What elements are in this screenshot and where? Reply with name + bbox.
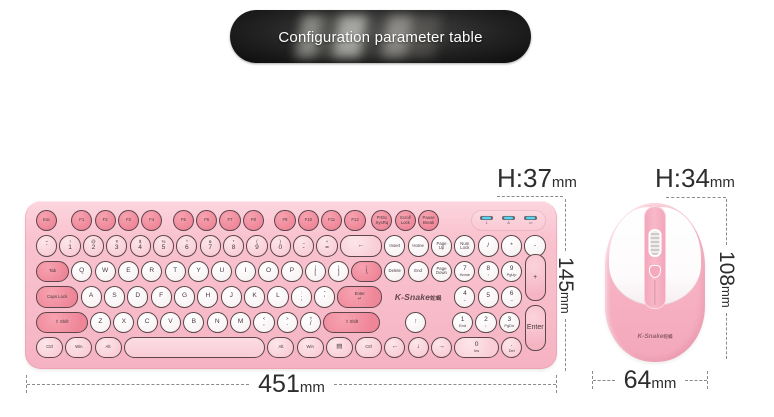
keyboard-row: CtrlWinAltAltWin▤Ctrl←↓→0Ins.Del: [35, 335, 547, 360]
key--: *: [501, 235, 522, 256]
key-e: E: [118, 261, 139, 282]
key-f5: F5: [173, 210, 194, 231]
key-esc: Esc: [36, 210, 57, 231]
keyboard-depth-label: 145mm: [553, 257, 577, 314]
key-x: X: [113, 312, 134, 333]
keyboard-row: EscF1F2F3F4F5F6F7F8F9F10F11F12PrtScSysRq…: [35, 208, 547, 233]
mouse-button-divider: [654, 280, 655, 305]
key-4: 4←: [454, 286, 475, 307]
key-f1: F1: [71, 210, 92, 231]
key-alt: Alt: [95, 337, 122, 358]
key--: ↑: [405, 312, 426, 333]
key--shift: ⇧ Shift: [323, 312, 379, 333]
key-home: Home: [408, 235, 429, 256]
key-d: D: [127, 286, 148, 307]
key-0: )0: [270, 235, 291, 256]
key-c: C: [137, 312, 158, 333]
battery-indicator-icon: ▭: [524, 216, 537, 226]
key-f12: F12: [344, 210, 365, 231]
key--: }]: [328, 261, 349, 282]
key-3: #3: [106, 235, 127, 256]
key-tab: Tab: [36, 261, 69, 282]
key-f8: F8: [243, 210, 264, 231]
keyboard-top-plane-line: [497, 196, 563, 197]
key-f: F: [151, 286, 172, 307]
key-5: 5: [478, 286, 499, 307]
key-f10: F10: [298, 210, 319, 231]
keyboard-depth-measure: 145mm: [552, 199, 578, 371]
keyboard-row: TabQWERTYUIOP{[}]|\DeleteEndPageDown7Hom…: [35, 259, 547, 284]
key-7: 7Home: [454, 261, 475, 282]
key--: .Del: [501, 337, 522, 358]
mouse-height-label: H:34mm: [655, 163, 735, 194]
key-v: V: [160, 312, 181, 333]
key-h: H: [197, 286, 218, 307]
keyboard-height-label: H:37mm: [497, 163, 577, 194]
key-n: N: [207, 312, 228, 333]
key--: {[: [305, 261, 326, 282]
keyboard-width-measure: 451mm: [26, 373, 557, 395]
keyboard-row: Caps LockASDFGHJKL:;"'Enter↵K-Snake蛇蝎4←5…: [35, 284, 547, 309]
key-f4: F4: [141, 210, 162, 231]
key-1: 1End: [452, 312, 473, 333]
key--: ←: [384, 337, 405, 358]
key-2: 2↓: [475, 312, 496, 333]
key--: →: [431, 337, 452, 358]
key-blank: [124, 337, 266, 358]
key-r: R: [141, 261, 162, 282]
key-caps-lock: Caps Lock: [36, 286, 78, 307]
key-9: (9: [246, 235, 267, 256]
key-f11: F11: [321, 210, 342, 231]
key--: "': [314, 286, 335, 307]
mouse-depth-measure: 108mm: [713, 199, 739, 359]
key-f9: F9: [274, 210, 295, 231]
key--: Enter↵: [337, 286, 382, 307]
key-q: Q: [71, 261, 92, 282]
key--: ?/: [300, 312, 321, 333]
num-lock-indicator-icon: 1: [480, 216, 493, 226]
key-y: Y: [188, 261, 209, 282]
mouse-brand-suffix: 蛇蝎: [664, 334, 673, 339]
keyboard-illustration: EscF1F2F3F4F5F6F7F8F9F10F11F12PrtScSysRq…: [25, 201, 557, 369]
key-win: Win: [65, 337, 92, 358]
key--: >.: [277, 312, 298, 333]
key-delete: Delete: [384, 261, 405, 282]
key--: |\: [351, 261, 382, 282]
key-f7: F7: [219, 210, 240, 231]
key-s: S: [104, 286, 125, 307]
key-8: *8: [223, 235, 244, 256]
key-lock: ScrollLock: [395, 210, 416, 231]
key-g: G: [174, 286, 195, 307]
mouse-scroll-wheel: [649, 229, 662, 257]
key-w: W: [95, 261, 116, 282]
key-insert: Insert: [384, 235, 405, 256]
keyboard-row: ~`!1@2#3$4%5^6&7*8(9)0_-+=←InsertHomePag…: [35, 233, 547, 258]
key--: <,: [253, 312, 274, 333]
mouse-width-measure: 64mm: [592, 369, 708, 391]
key-i: I: [235, 261, 256, 282]
key-sysrq: PrtScSysRq: [371, 210, 392, 231]
key-4: $4: [130, 235, 151, 256]
key-6: 6→: [501, 286, 522, 307]
key-ctrl: Ctrl: [355, 337, 382, 358]
mouse-width-label: 64mm: [624, 366, 677, 395]
product-spec-sheet: Configuration parameter table EscF1F2F3F…: [0, 0, 774, 417]
key-j: J: [221, 286, 242, 307]
key--: +=: [316, 235, 337, 256]
key-u: U: [211, 261, 232, 282]
keyboard-row: ⇧ ShiftZXCVBNM<,>.?/⇧ Shift↑1End2↓3PgDn: [35, 310, 547, 335]
key-5: %5: [153, 235, 174, 256]
mouse-brand-logo: K-Snake蛇蝎: [605, 333, 705, 340]
key-end: End: [408, 261, 429, 282]
key-up: PageUp: [431, 235, 452, 256]
key-k: K: [244, 286, 265, 307]
key-f6: F6: [196, 210, 217, 231]
key-down: PageDown: [431, 261, 452, 282]
key-win: Win: [297, 337, 324, 358]
keyboard-width-label: 451mm: [258, 370, 325, 399]
caps-lock-indicator-icon: A: [502, 216, 515, 226]
key-p: P: [281, 261, 302, 282]
key-f3: F3: [118, 210, 139, 231]
header-banner: Configuration parameter table: [230, 10, 531, 63]
key-6: ^6: [176, 235, 197, 256]
key-l: L: [267, 286, 288, 307]
mouse-illustration: K-Snake蛇蝎: [605, 203, 705, 362]
key-7: &7: [200, 235, 221, 256]
key--: ▤: [326, 337, 353, 358]
key-0: 0Ins: [454, 337, 499, 358]
key-2: @2: [83, 235, 104, 256]
key-z: Z: [90, 312, 111, 333]
key-b: B: [183, 312, 204, 333]
mouse-top-plane-line: [666, 197, 726, 198]
key-m: M: [230, 312, 251, 333]
key--: _-: [293, 235, 314, 256]
key-o: O: [258, 261, 279, 282]
banner-title: Configuration parameter table: [230, 29, 531, 46]
key--: ←: [340, 235, 382, 256]
key-ctrl: Ctrl: [36, 337, 63, 358]
key-alt: Alt: [267, 337, 294, 358]
indicator-panel: 1A▭: [471, 210, 546, 231]
key-enter: Enter: [525, 305, 546, 352]
mouse-brand-text: K-Snake: [637, 333, 663, 340]
key-f2: F2: [95, 210, 116, 231]
key--: +: [525, 254, 546, 301]
key-break: PauseBreak: [418, 210, 439, 231]
key-8: 8↑: [478, 261, 499, 282]
key--: /: [478, 235, 499, 256]
keyboard-key-area: EscF1F2F3F4F5F6F7F8F9F10F11F12PrtScSysRq…: [25, 201, 557, 369]
key-lock: NumLock: [454, 235, 475, 256]
key-3: 3PgDn: [499, 312, 520, 333]
key-1: !1: [59, 235, 80, 256]
key--: ↓: [408, 337, 429, 358]
key-9: 9PgUp: [501, 261, 522, 282]
keyboard-brand-logo: K-Snake蛇蝎: [383, 286, 453, 307]
key-t: T: [165, 261, 186, 282]
key--: ~`: [36, 235, 57, 256]
key--: :;: [291, 286, 312, 307]
key-a: A: [81, 286, 102, 307]
key--shift: ⇧ Shift: [36, 312, 88, 333]
mouse-depth-label: 108mm: [714, 251, 738, 308]
